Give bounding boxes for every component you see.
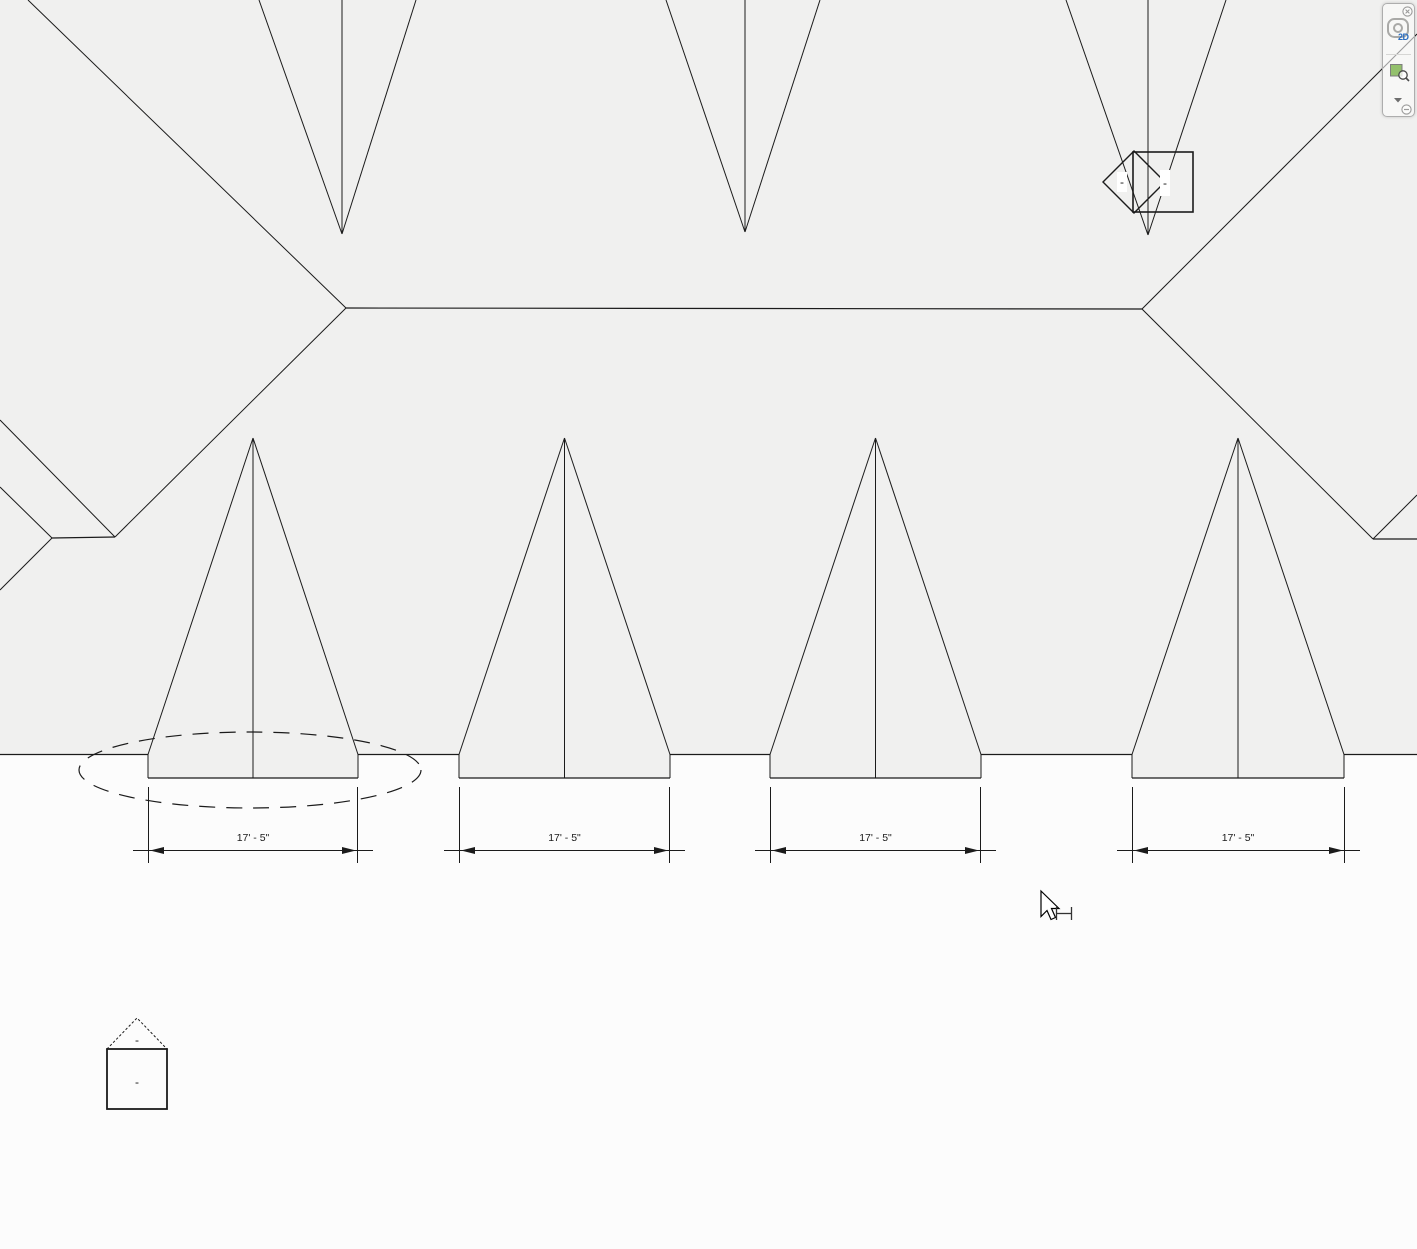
navbar-divider: [1386, 54, 1411, 55]
close-icon[interactable]: [1402, 5, 1413, 16]
dimension-value[interactable]: 17' - 5": [237, 832, 270, 844]
house-roof-label: -: [135, 1033, 139, 1047]
dimension-value[interactable]: 17' - 5": [548, 832, 581, 844]
navigation-bar: 2D: [1382, 3, 1415, 117]
dimension-value[interactable]: 17' - 5": [859, 832, 892, 844]
steering-wheel-icon[interactable]: [1386, 17, 1412, 43]
dropdown-arrow-icon[interactable]: [1392, 92, 1404, 100]
collapse-icon[interactable]: [1401, 103, 1412, 114]
house-body-label: -: [135, 1075, 139, 1089]
marker-box-label: -: [1163, 176, 1167, 190]
drawing-canvas[interactable]: 17' - 5" 17' - 5" 17' - 5": [0, 0, 1417, 1249]
marker-diamond-label: -: [1120, 175, 1124, 189]
dimension-value[interactable]: 17' - 5": [1222, 832, 1255, 844]
zoom-region-icon[interactable]: [1389, 63, 1411, 85]
roof-plan-view: 17' - 5" 17' - 5" 17' - 5": [0, 0, 1417, 1249]
below-eave-background: [0, 755, 1417, 1249]
